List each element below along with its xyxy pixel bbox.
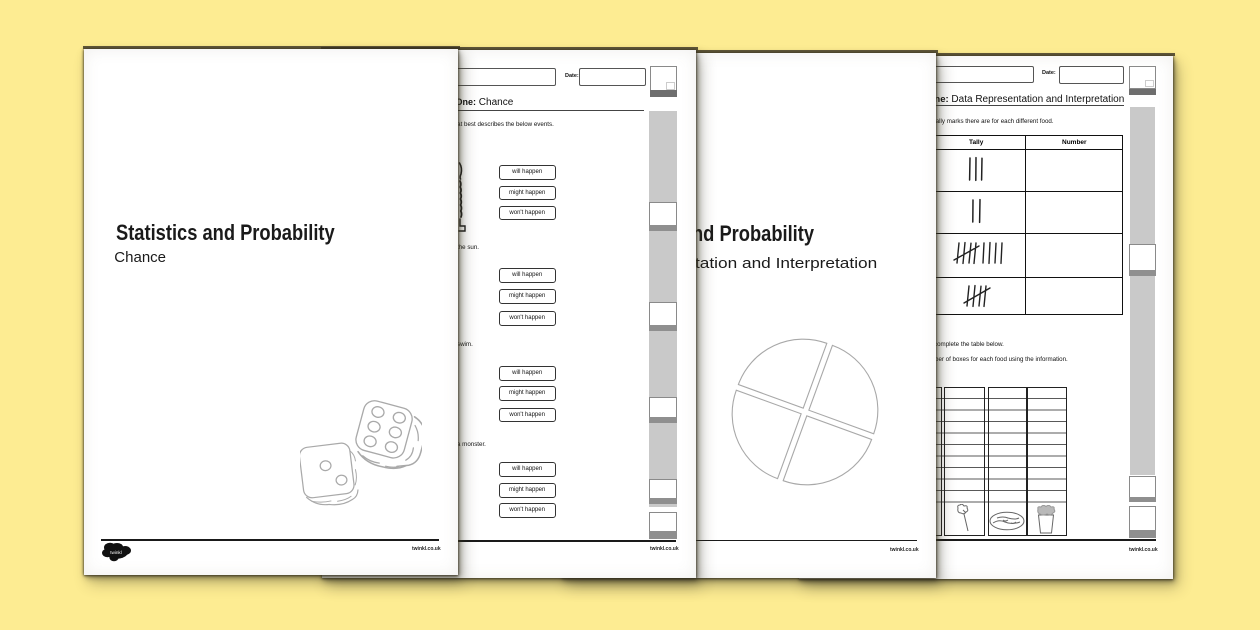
svg-text:twinkl: twinkl xyxy=(110,550,122,555)
